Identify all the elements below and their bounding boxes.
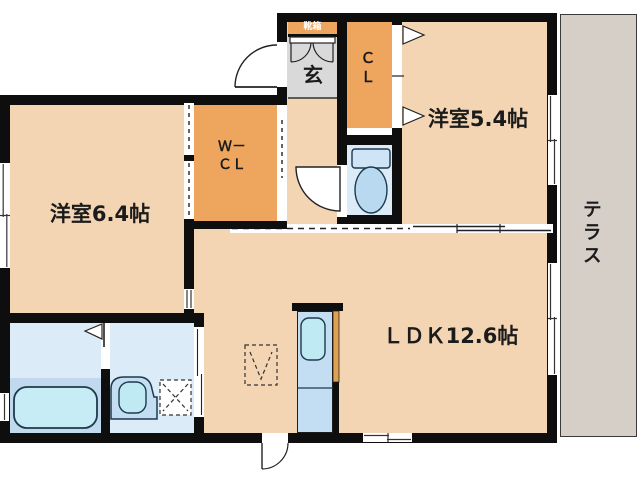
shoe-box-label: 靴箱 [288,22,337,33]
window-bedroom64-left [0,163,10,268]
bedroom-54-label: 洋室5.4帖 [408,106,548,132]
wcl-label-line1: Ｗ－ [203,139,261,157]
window-bathroom-left [0,393,9,421]
bath-folding-door [85,323,110,369]
wall-wcl-bottom [184,221,287,229]
wcl-door-bedroom-side [184,103,194,219]
bedroom-64-label: 洋室6.4帖 [20,201,180,227]
washing-machine-space [160,380,191,415]
entrance-label: 玄 [299,63,327,88]
kitchen-counter-end [333,311,339,382]
window-bedroom54-right [548,95,557,185]
terrace-label: テラス [578,190,602,276]
ldk-label: ＬＤＫ12.6帖 [368,323,533,349]
bedroom64-door [184,289,194,309]
washbasin [111,377,157,419]
closet-label-line1: Ｃ [355,49,381,68]
washroom-door [194,327,204,417]
walk-in-closet-label: Ｗ－ ＣＬ [203,139,261,174]
kitchen-sink [297,318,333,388]
refrigerator-space [245,345,277,385]
closet-label: Ｃ Ｌ [355,49,381,87]
toilet-door [296,165,347,217]
bathtub [14,387,97,428]
closet-label-line2: Ｌ [355,68,381,87]
window-ldk-right [548,263,557,375]
floorplan-canvas: 洋室6.4帖 洋室5.4帖 ＬＤＫ12.6帖 玄 靴箱 Ｃ Ｌ Ｗ－ ＣＬ テラ… [0,0,640,480]
ldk-service-door [262,433,288,469]
window-ldk-bottom [363,433,412,442]
wcl-label-line2: ＣＬ [203,157,261,175]
wcl-door-hall-side [277,118,287,180]
shoe-cabinet [290,37,335,62]
toilet [352,149,390,213]
entrance-door [235,42,287,87]
